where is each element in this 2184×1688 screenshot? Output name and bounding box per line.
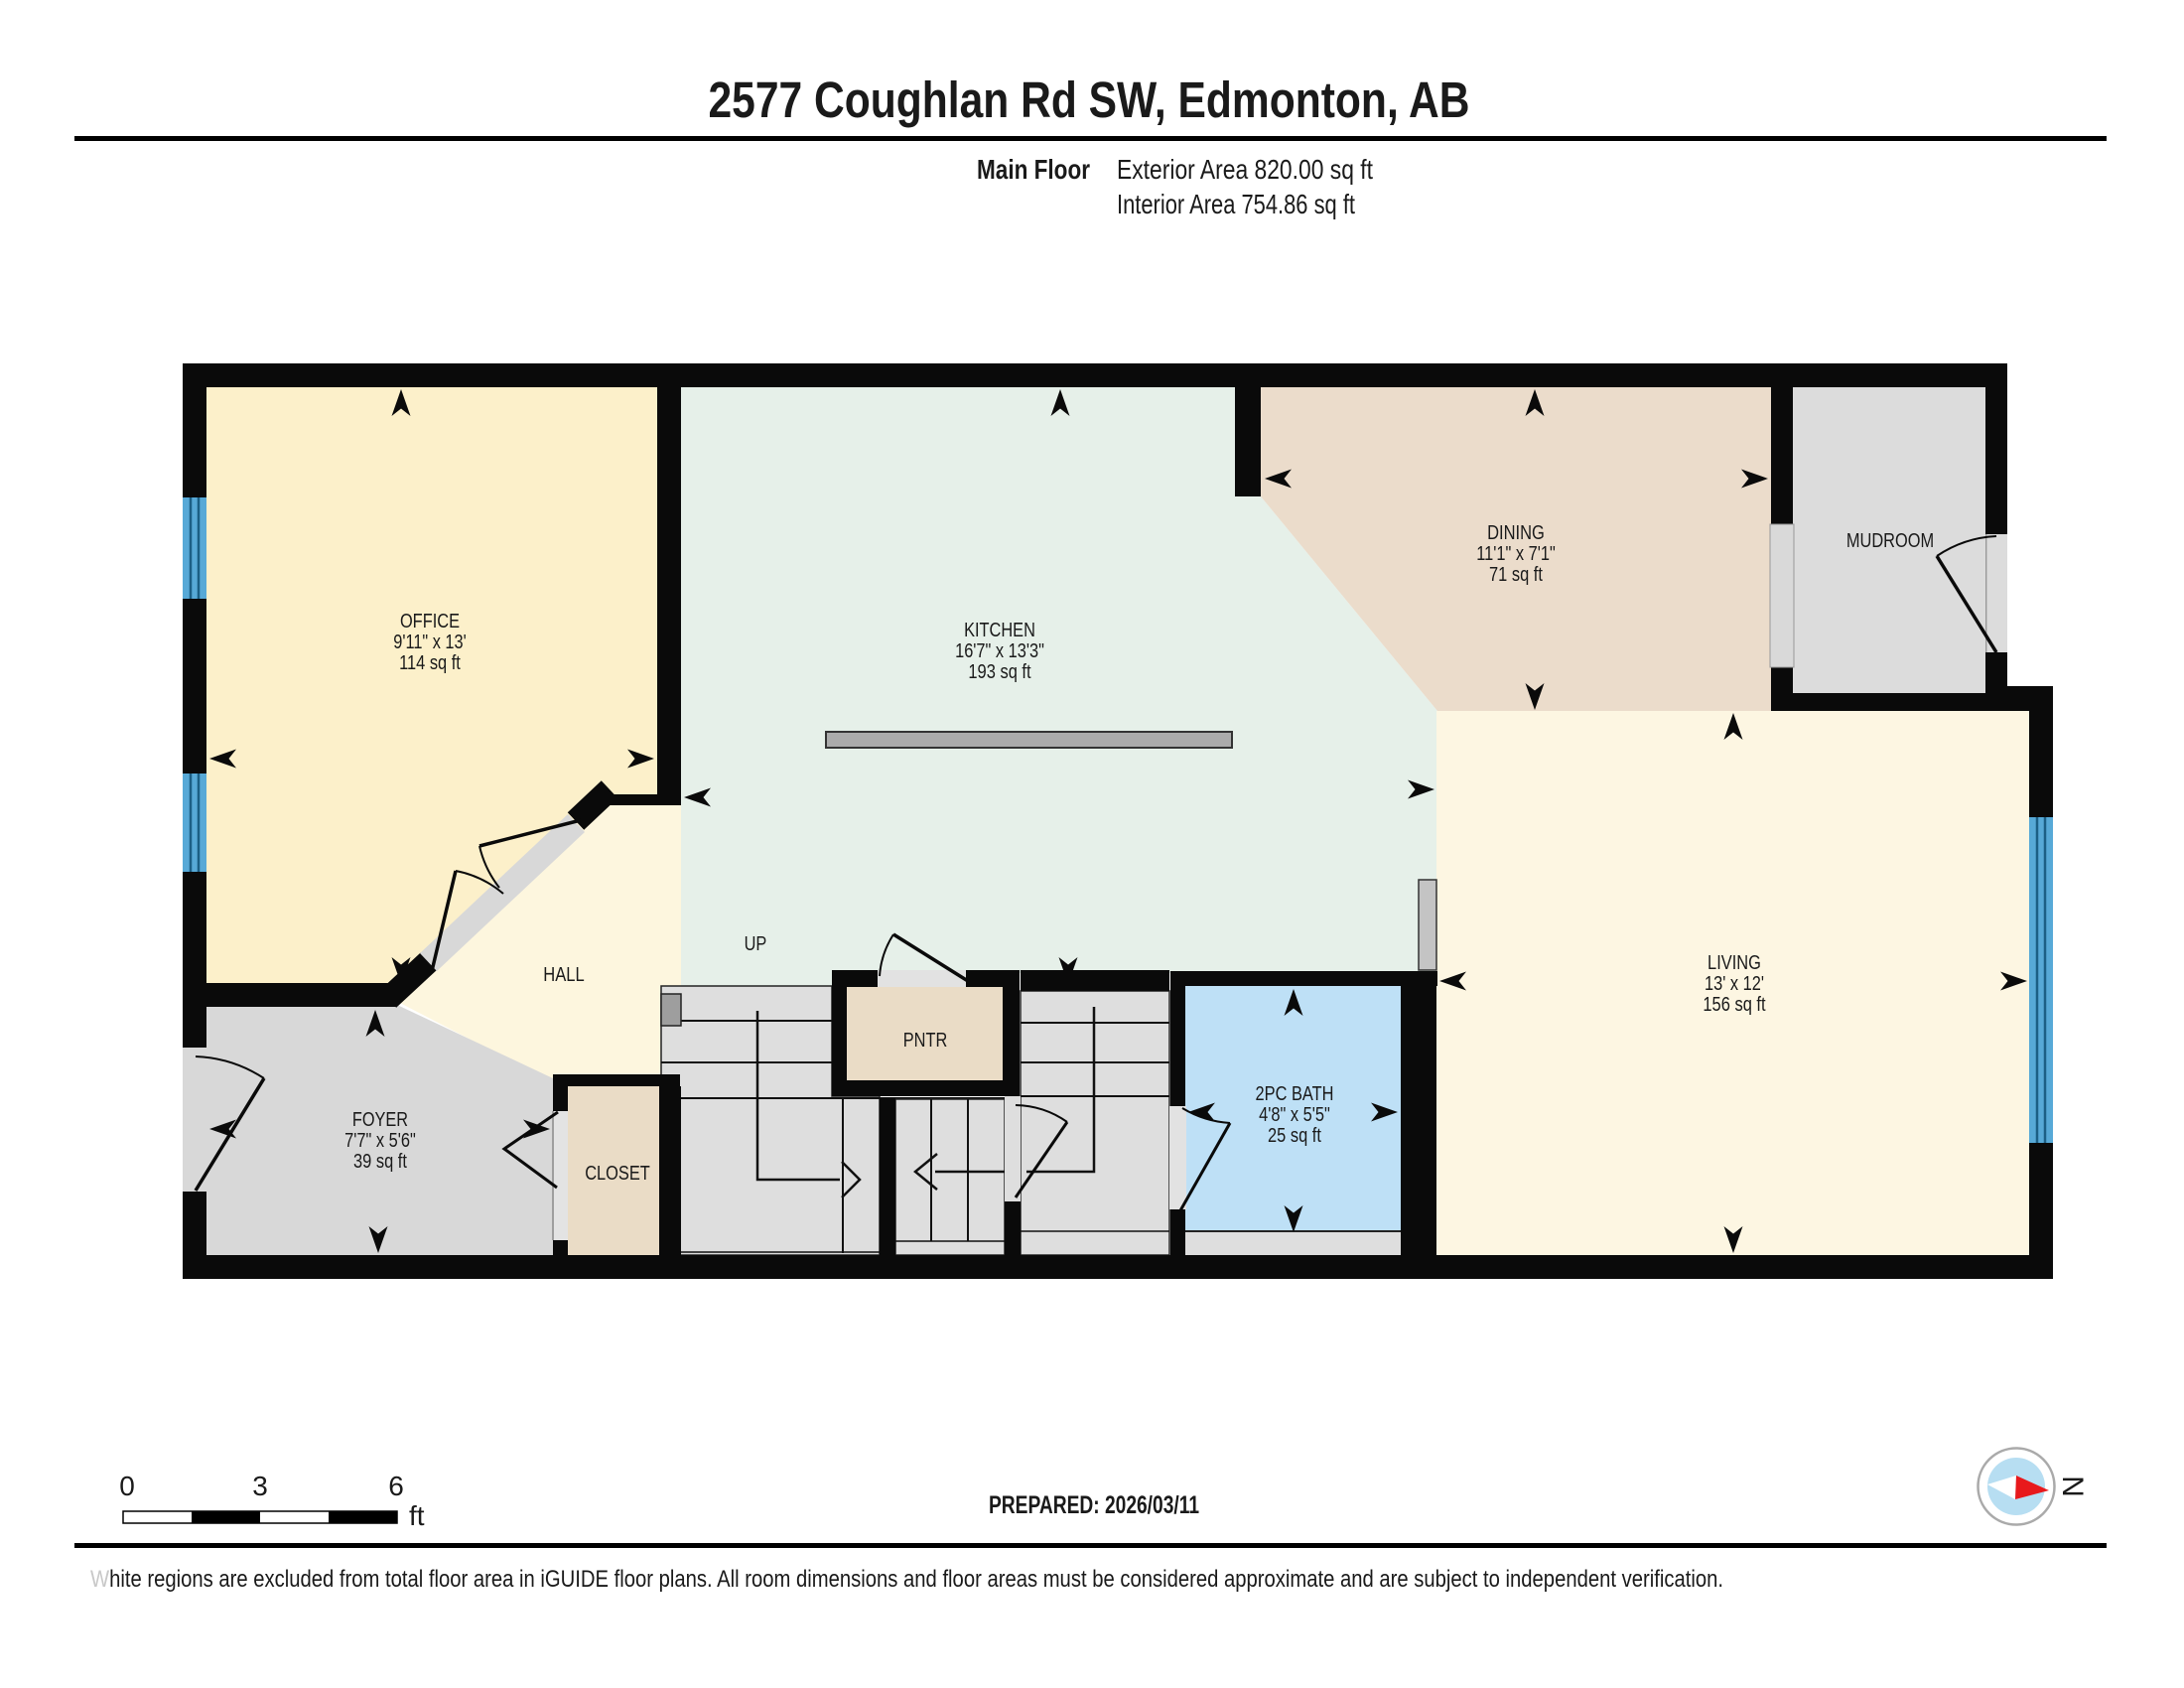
svg-text:Exterior Area 820.00 sq ft: Exterior Area 820.00 sq ft [1117, 154, 1373, 185]
svg-text:CLOSET: CLOSET [585, 1163, 650, 1185]
svg-text:0: 0 [119, 1471, 135, 1501]
svg-text:PNTR: PNTR [903, 1030, 948, 1052]
svg-text:2577 Coughlan Rd SW, Edmonton,: 2577 Coughlan Rd SW, Edmonton, AB [709, 71, 1470, 128]
svg-text:16'7" x 13'3": 16'7" x 13'3" [955, 640, 1044, 662]
svg-text:156 sq ft: 156 sq ft [1703, 994, 1766, 1016]
svg-text:ft: ft [409, 1500, 425, 1531]
svg-text:193 sq ft: 193 sq ft [968, 661, 1031, 683]
svg-text:MUDROOM: MUDROOM [1846, 530, 1934, 552]
svg-text:Main Floor: Main Floor [977, 154, 1090, 185]
svg-text:HALL: HALL [543, 964, 584, 986]
svg-text:114 sq ft: 114 sq ft [399, 652, 461, 674]
svg-text:7'7" x 5'6": 7'7" x 5'6" [344, 1130, 416, 1152]
svg-text:71 sq ft: 71 sq ft [1489, 564, 1543, 586]
svg-text:KITCHEN: KITCHEN [964, 620, 1035, 641]
svg-text:OFFICE: OFFICE [400, 611, 460, 633]
svg-text:LIVING: LIVING [1707, 952, 1761, 974]
svg-text:2PC BATH: 2PC BATH [1256, 1083, 1334, 1105]
svg-text:FOYER: FOYER [352, 1109, 408, 1131]
svg-text:39 sq ft: 39 sq ft [353, 1151, 407, 1173]
svg-text:11'1" x 7'1": 11'1" x 7'1" [1476, 543, 1556, 565]
svg-text:9'11" x 13': 9'11" x 13' [393, 632, 466, 653]
svg-text:25 sq ft: 25 sq ft [1268, 1125, 1321, 1147]
svg-text:13' x 12': 13' x 12' [1705, 973, 1764, 995]
svg-text:PREPARED: 2026/03/11: PREPARED: 2026/03/11 [989, 1491, 1199, 1519]
svg-text:UP: UP [745, 933, 767, 955]
svg-text:DINING: DINING [1487, 522, 1545, 544]
svg-text:Interior Area 754.86 sq ft: Interior Area 754.86 sq ft [1117, 189, 1355, 219]
svg-text:3: 3 [252, 1471, 268, 1501]
svg-text:White regions are excluded fro: White regions are excluded from total fl… [90, 1566, 1723, 1593]
svg-text:6: 6 [388, 1471, 404, 1501]
svg-text:N: N [2056, 1476, 2089, 1497]
svg-text:4'8" x 5'5": 4'8" x 5'5" [1259, 1104, 1330, 1126]
